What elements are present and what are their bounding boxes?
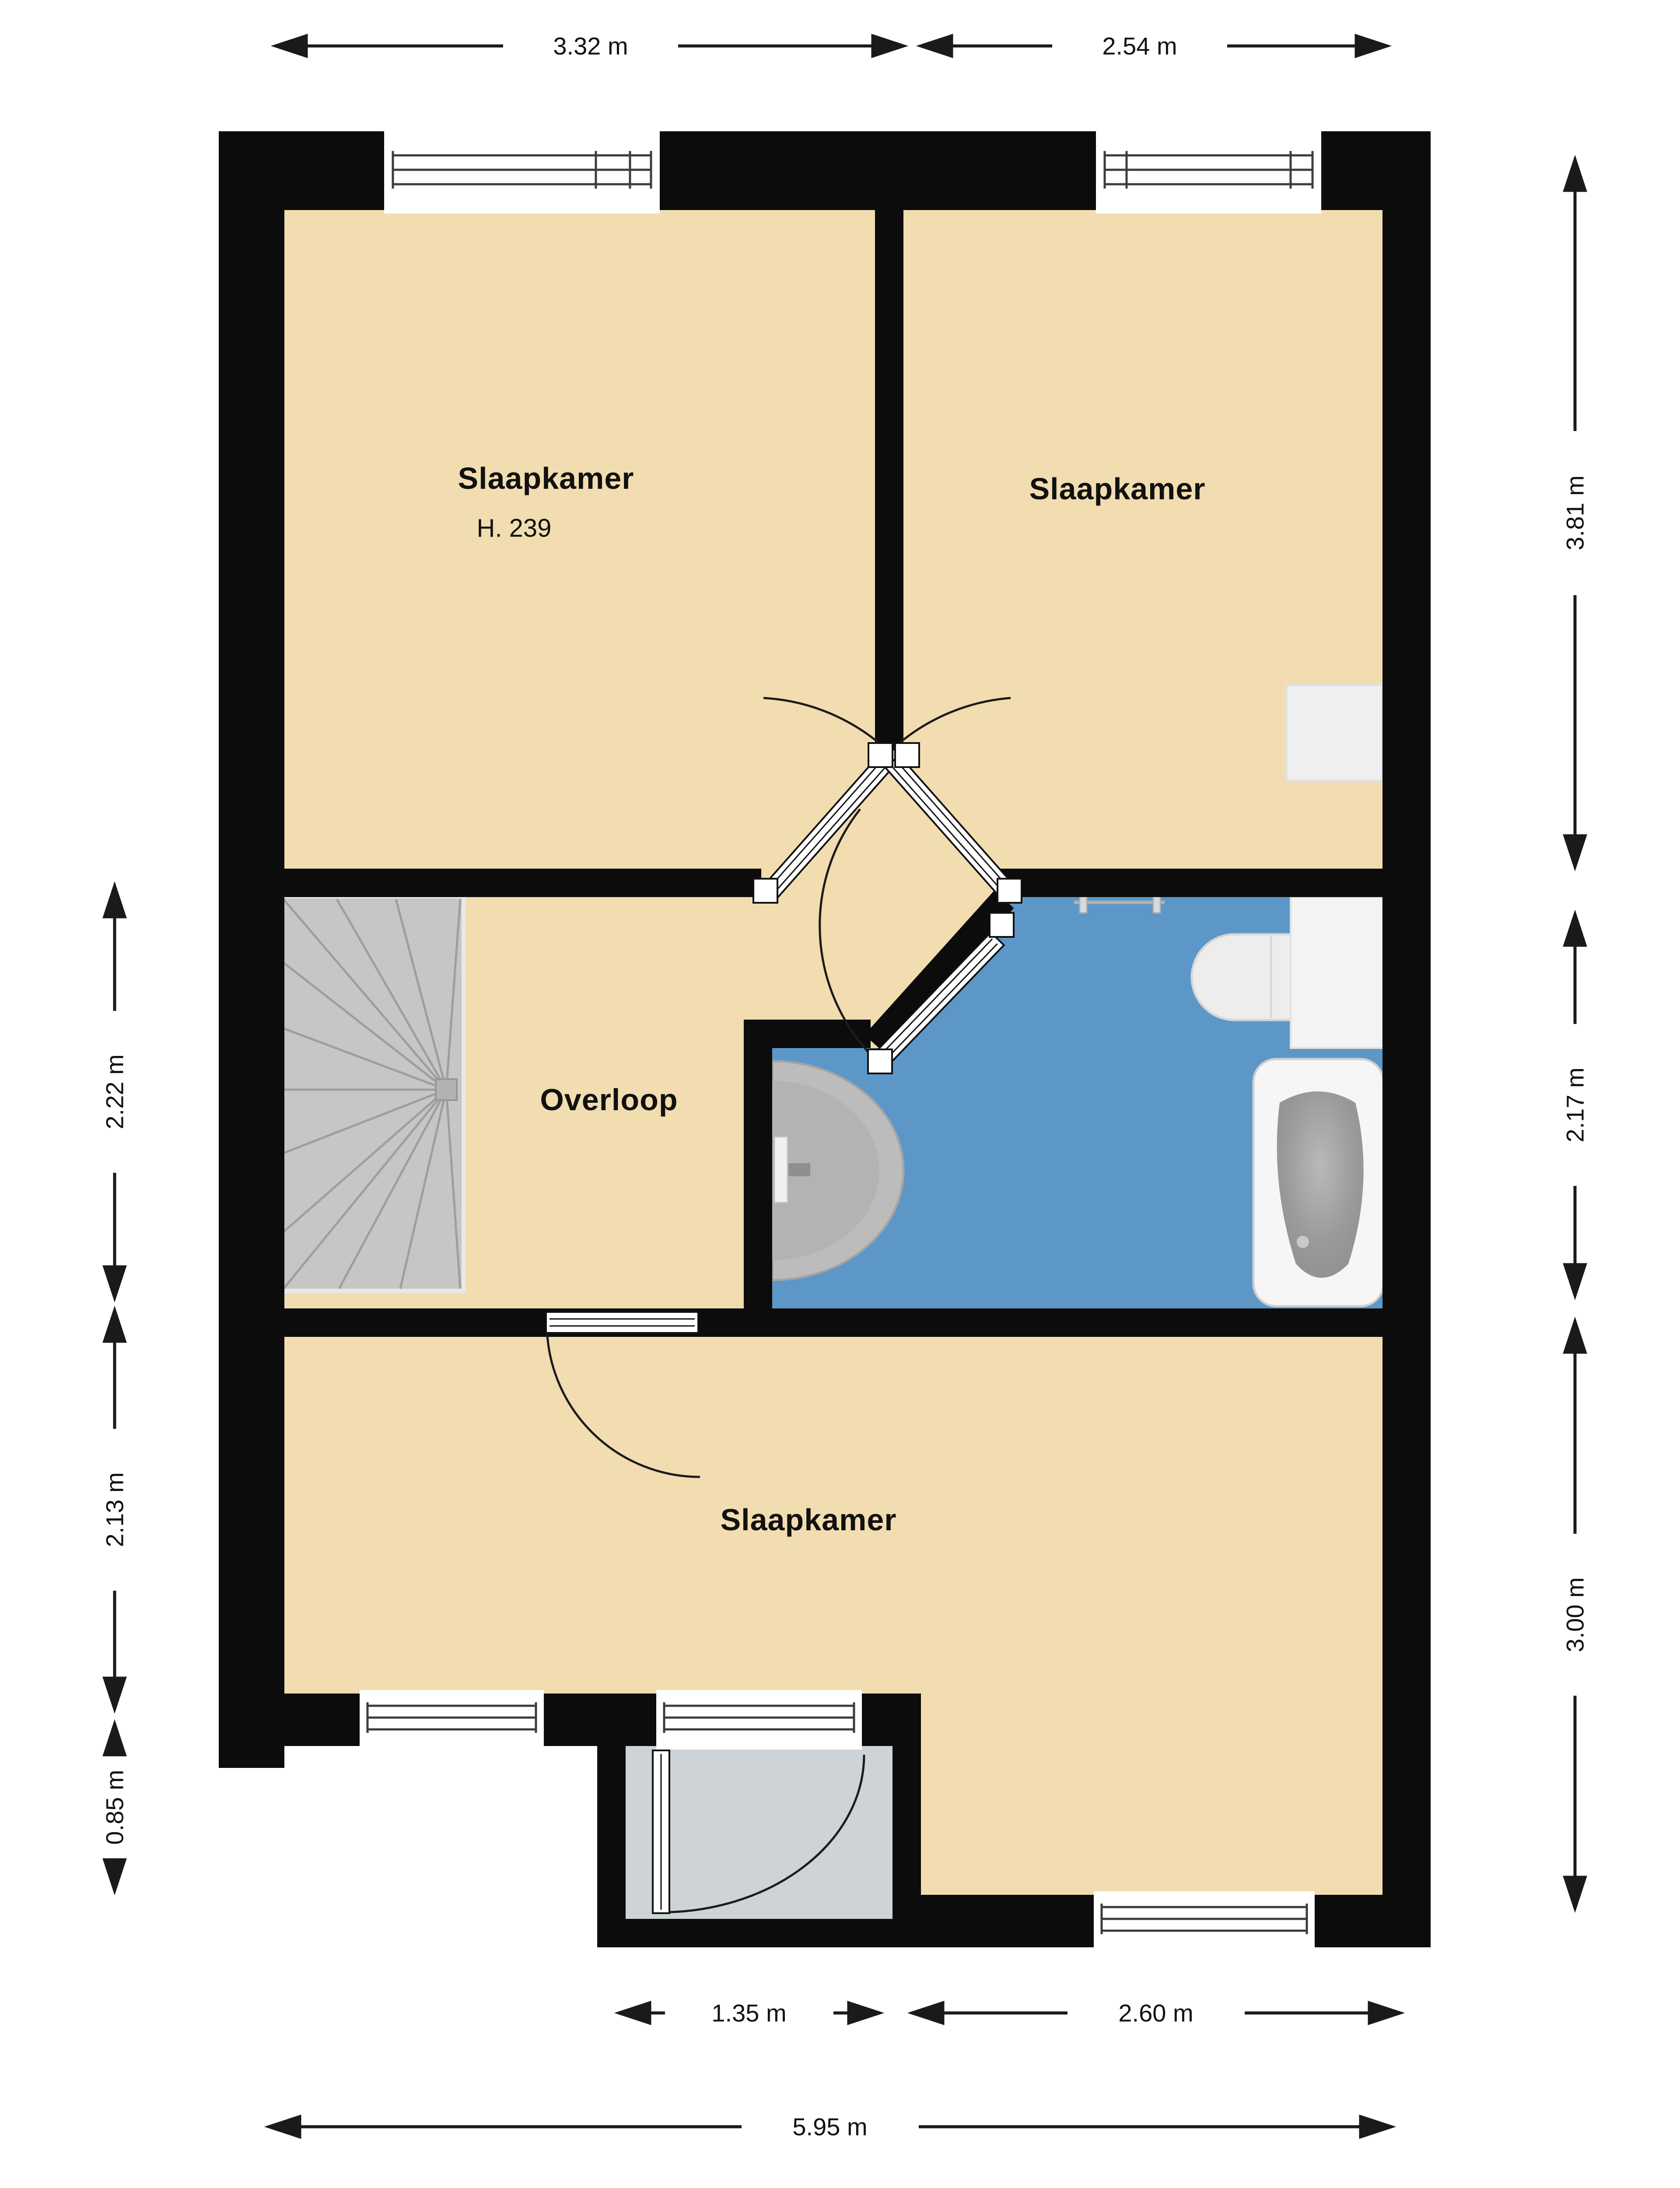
wall-alcove-left (744, 1020, 772, 1308)
room-label-bedroom-top-left: Slaapkamer (458, 461, 634, 496)
wall-vestibule-right (892, 1694, 921, 1947)
stair-newel (436, 1079, 457, 1100)
floorplan-drawing (0, 0, 1680, 2188)
dim-left-3: 0.85 m (101, 1770, 129, 1844)
wall-right (1382, 131, 1431, 1947)
room-label-bedroom-bottom: Slaapkamer (720, 1502, 896, 1537)
dim-top-right: 2.54 m (1102, 32, 1177, 60)
dim-left-1: 2.22 m (101, 1054, 129, 1129)
wall-mid-left (219, 869, 761, 897)
window-top-left (384, 128, 660, 214)
dim-bottom-1: 1.35 m (711, 1999, 786, 2027)
toilet (1192, 934, 1291, 1020)
room-label-bedroom-top-right: Slaapkamer (1029, 471, 1205, 506)
wall-bedroom-divider (875, 210, 903, 750)
dim-bottom-2: 2.60 m (1118, 1999, 1193, 2027)
window-bottom-left (360, 1690, 544, 1750)
room-height-note: H. 239 (477, 514, 552, 543)
basin-faucet (774, 1137, 787, 1203)
basin-handle (788, 1163, 810, 1176)
dim-top-left: 3.32 m (553, 32, 628, 60)
wall-entry-jamb-left (626, 1694, 656, 1746)
wall-landing-bottom (219, 1308, 1382, 1337)
disclaimer-line: Deze tekening geeft een indicatie van de… (232, 2181, 1150, 2188)
dim-right-3: 3.00 m (1561, 1577, 1589, 1652)
door-panel-bedroom-bottom (546, 1312, 698, 1333)
dim-right-2: 2.17 m (1561, 1067, 1589, 1142)
dim-total-width: 5.95 m (792, 2113, 867, 2141)
window-bottom-right (1094, 1891, 1315, 1951)
room-label-landing: Overloop (540, 1082, 678, 1117)
wall-left (219, 131, 284, 1768)
window-top-right (1096, 128, 1321, 214)
entry-door-window (656, 1690, 862, 1750)
bathtub (1253, 1059, 1383, 1306)
wall-vestibule-left (597, 1694, 626, 1947)
door-panel-entry (653, 1750, 669, 1913)
wardrobe (1286, 685, 1382, 781)
disclaimer: Deze tekening geeft een indicatie van de… (232, 2181, 1150, 2188)
floorplan-page: Slaapkamer H. 239 Slaapkamer Overloop Sl… (0, 0, 1680, 2188)
staircase (280, 896, 464, 1291)
tub-drain (1297, 1236, 1309, 1248)
wall-mid-right (1000, 869, 1382, 897)
dim-left-2: 2.13 m (101, 1472, 129, 1547)
dim-right-1: 3.81 m (1561, 475, 1589, 550)
wall-vestibule-bottom (597, 1919, 921, 1947)
cistern-cabinet (1291, 897, 1382, 1048)
